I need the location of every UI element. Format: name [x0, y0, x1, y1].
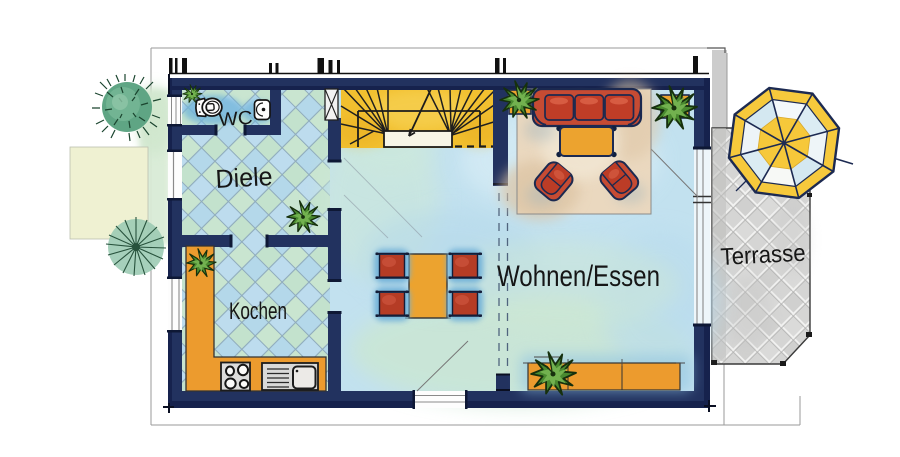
svg-text:Diele: Diele — [215, 161, 273, 194]
svg-text:WC: WC — [218, 108, 253, 131]
svg-text:Terrasse: Terrasse — [720, 240, 806, 271]
svg-text:Kochen: Kochen — [229, 298, 287, 325]
svg-text:Wohnen/Essen: Wohnen/Essen — [497, 260, 660, 293]
